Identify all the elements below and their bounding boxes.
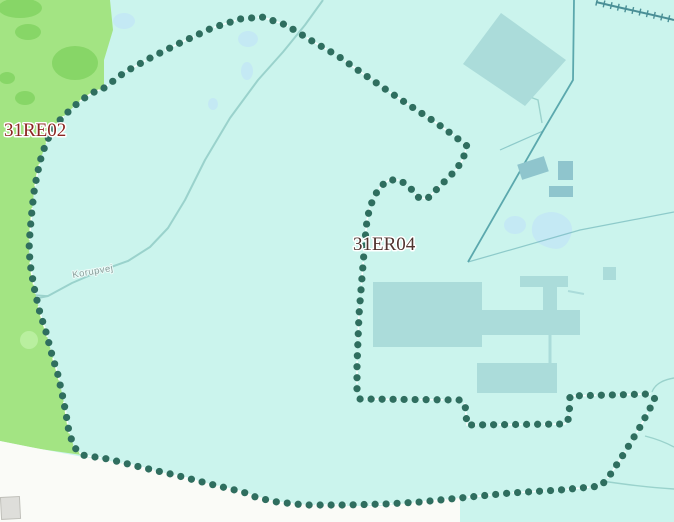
small-building xyxy=(603,267,616,280)
farm-building-2 xyxy=(558,161,573,180)
gray-building xyxy=(0,496,20,519)
map-svg: Korupvej 31RE02 31ER04 xyxy=(0,0,674,522)
pond xyxy=(241,62,253,80)
tree-blob xyxy=(15,24,41,40)
zone-label-31ER04: 31ER04 xyxy=(353,234,416,255)
factory-wing-building xyxy=(482,310,580,335)
factory-main-building xyxy=(373,282,482,347)
zone-label-31RE02: 31RE02 xyxy=(4,120,66,141)
factory-lower-building xyxy=(477,363,557,393)
tree-blob xyxy=(52,46,98,80)
factory-tower-building xyxy=(543,287,557,313)
tree-blob xyxy=(15,91,35,105)
pond xyxy=(208,98,218,110)
factory-bar-building xyxy=(520,276,568,287)
pond xyxy=(238,31,258,47)
pond xyxy=(113,13,135,29)
map-canvas[interactable]: Korupvej 31RE02 31ER04 xyxy=(0,0,674,522)
clearing-blob xyxy=(20,331,38,349)
pond xyxy=(504,216,526,234)
farm-building-3 xyxy=(549,186,573,197)
